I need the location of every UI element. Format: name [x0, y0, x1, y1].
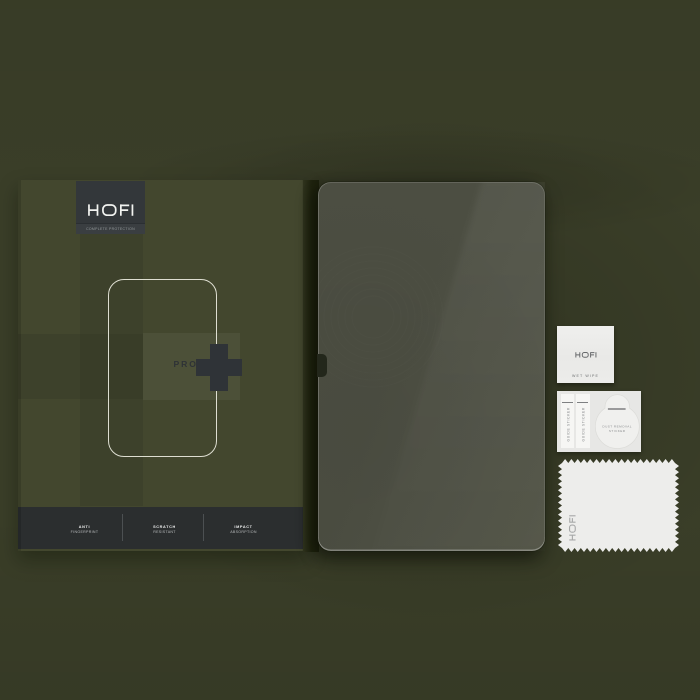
svg-text:GUIDE STICKER: GUIDE STICKER: [566, 407, 570, 441]
svg-text:GUIDE STICKER: GUIDE STICKER: [582, 407, 586, 441]
svg-text:STICKER: STICKER: [608, 429, 625, 433]
svg-text:DUST REMOVAL: DUST REMOVAL: [602, 424, 632, 428]
